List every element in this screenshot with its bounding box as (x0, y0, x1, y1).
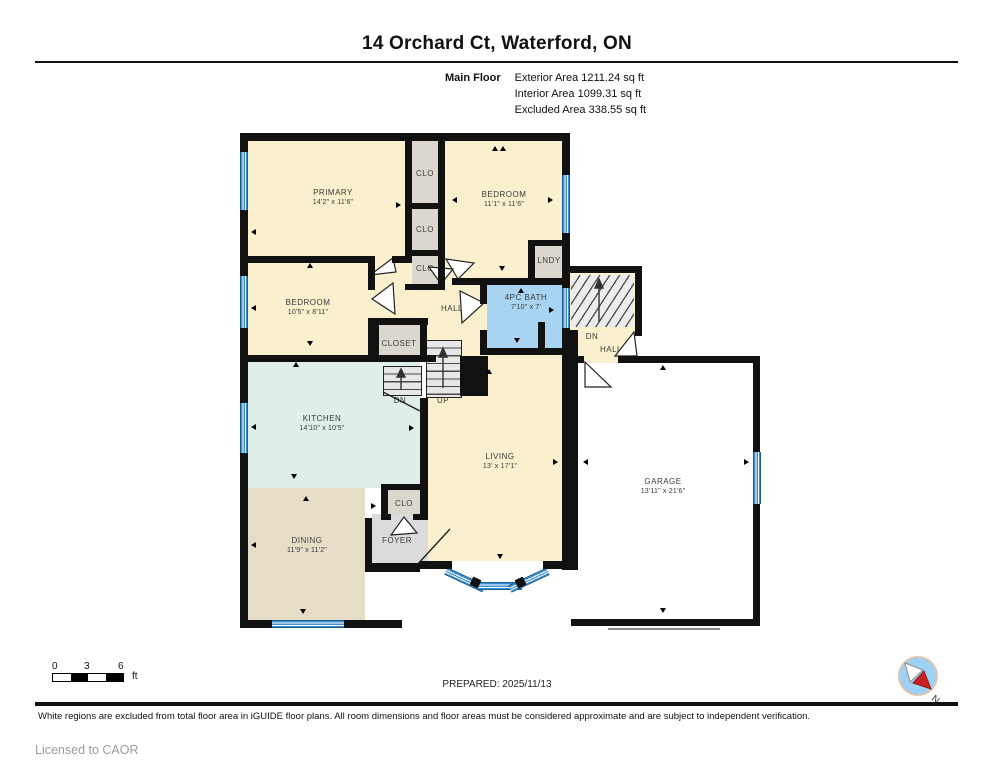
dimension-arrow (251, 424, 256, 430)
wall (480, 278, 570, 285)
wall (480, 278, 487, 304)
window (753, 452, 761, 504)
wall (538, 322, 545, 352)
dimension-arrow (452, 197, 457, 203)
scale-tick-0: 0 (52, 661, 58, 672)
wall (438, 140, 445, 262)
dimension-arrow (371, 503, 376, 509)
wall (528, 240, 570, 246)
wall (420, 561, 452, 569)
dimension-arrow (486, 369, 492, 374)
dimension-arrow (293, 362, 299, 367)
dimension-arrow (307, 263, 313, 268)
wall (562, 330, 578, 570)
wall (240, 355, 436, 362)
dimension-arrow (744, 459, 749, 465)
disclaimer-text: White regions are excluded from total fl… (38, 711, 958, 722)
wall (562, 266, 642, 273)
dimension-arrow (492, 146, 498, 151)
window (240, 152, 248, 210)
scale-bar-segments (52, 673, 124, 682)
wall (368, 260, 375, 290)
dimension-arrow (583, 459, 588, 465)
prepared-date: PREPARED: 2025/11/13 (397, 679, 597, 690)
dimension-arrow (307, 341, 313, 346)
dimension-arrow (497, 554, 503, 559)
dimension-arrow (251, 542, 256, 548)
dimension-arrow (500, 146, 506, 151)
wall (571, 619, 760, 626)
dimension-arrow (660, 365, 666, 370)
dimension-arrow (548, 197, 553, 203)
floorplan-page: 14 Orchard Ct, Waterford, ON Main Floor … (0, 0, 994, 768)
dimension-arrow (553, 459, 558, 465)
floorplan-drawing: PRIMARY14'2" x 11'6" BEDROOM11'1" x 11'6… (0, 0, 994, 768)
wall (635, 266, 642, 336)
wall (420, 398, 428, 490)
scale-unit: ft (132, 671, 138, 682)
dimension-arrow (251, 305, 256, 311)
scale-tick-6: 6 (118, 661, 124, 672)
window (240, 403, 248, 453)
window (240, 276, 248, 328)
door-swings-overlay (0, 0, 994, 768)
window (562, 175, 570, 233)
dimension-arrow (409, 425, 414, 431)
dimension-arrow (514, 338, 520, 343)
dimension-arrow (499, 266, 505, 271)
wall (570, 356, 584, 363)
compass-icon: N (894, 654, 952, 706)
dimension-arrow (303, 496, 309, 501)
dimension-arrow (291, 474, 297, 479)
scale-tick-3: 3 (84, 661, 90, 672)
footer-divider (35, 702, 958, 706)
wall (405, 140, 412, 262)
dimension-arrow (549, 307, 554, 313)
license-text: Licensed to CAOR (35, 743, 139, 757)
wall (452, 278, 482, 285)
dimension-arrow (300, 609, 306, 614)
wall (413, 514, 428, 520)
wall (240, 256, 375, 263)
dimension-arrow (396, 202, 401, 208)
wall (543, 561, 570, 569)
wall (405, 203, 445, 209)
wall (405, 250, 445, 256)
wall (365, 563, 420, 572)
wall (480, 348, 570, 355)
wall (381, 514, 391, 520)
dimension-arrow (251, 229, 256, 235)
dimension-arrow (660, 608, 666, 613)
window (562, 288, 570, 328)
wall (372, 318, 428, 325)
dimension-arrow (518, 288, 524, 293)
wall (405, 284, 445, 290)
wall (618, 356, 760, 363)
scale-bar: 0 3 6 ft (52, 661, 142, 682)
window (272, 620, 344, 628)
